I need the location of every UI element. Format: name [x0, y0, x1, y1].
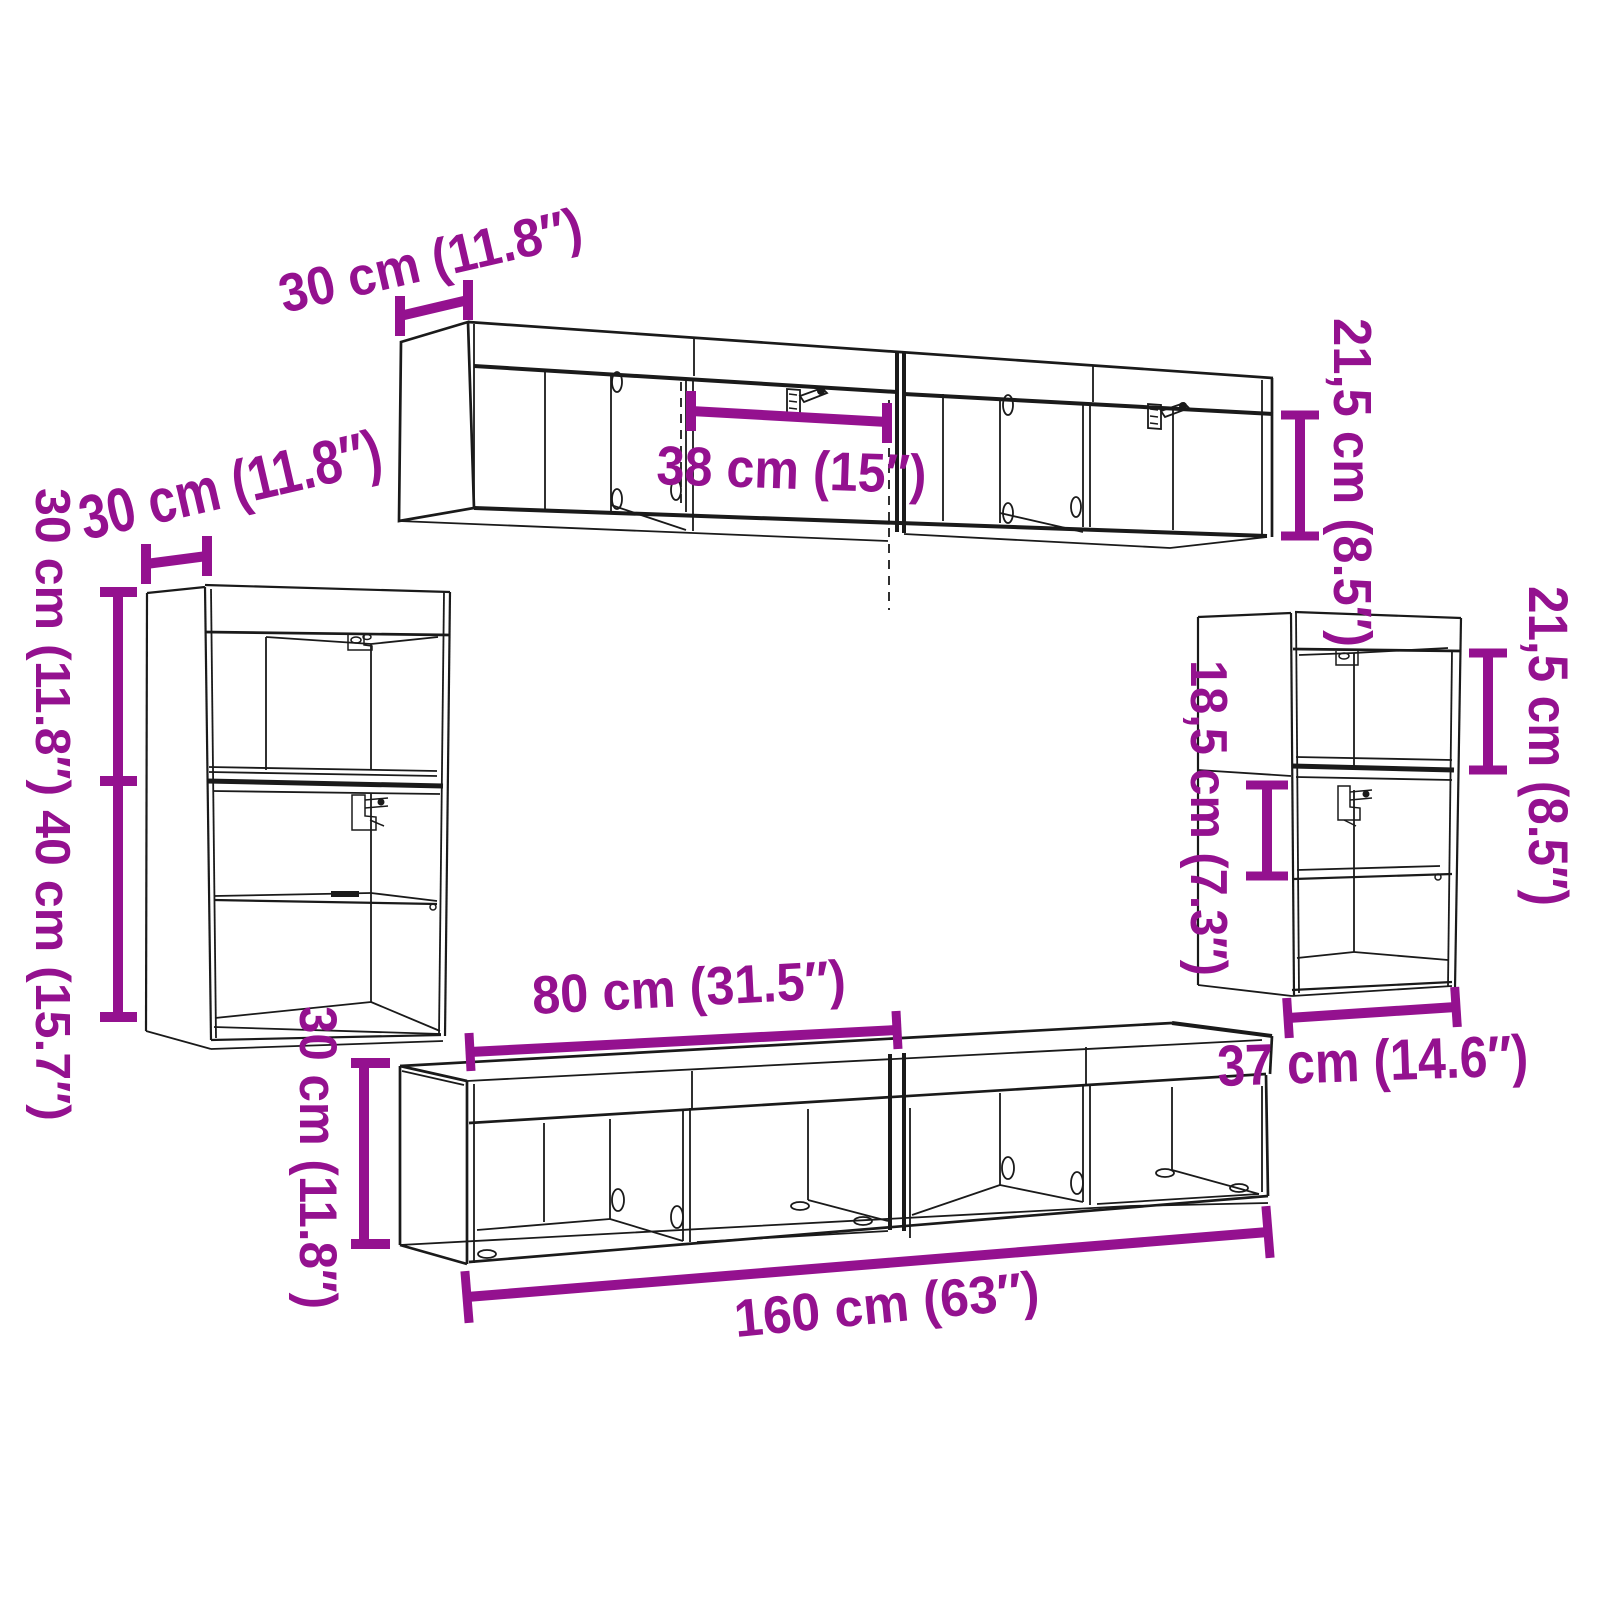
svg-text:21,5 cm (8.5″): 21,5 cm (8.5″)	[1517, 586, 1580, 906]
svg-text:38 cm (15″): 38 cm (15″)	[656, 434, 928, 505]
svg-text:21,5 cm (8.5″): 21,5 cm (8.5″)	[1322, 318, 1382, 647]
svg-text:30 cm (11.8″) 40 cm (15.7″): 30 cm (11.8″) 40 cm (15.7″)	[25, 488, 79, 1121]
svg-text:18,5 cm (7.3″): 18,5 cm (7.3″)	[1179, 660, 1237, 976]
svg-text:30 cm (11.8″): 30 cm (11.8″)	[288, 1006, 347, 1309]
svg-text:37 cm (14.6″): 37 cm (14.6″)	[1216, 1023, 1529, 1099]
